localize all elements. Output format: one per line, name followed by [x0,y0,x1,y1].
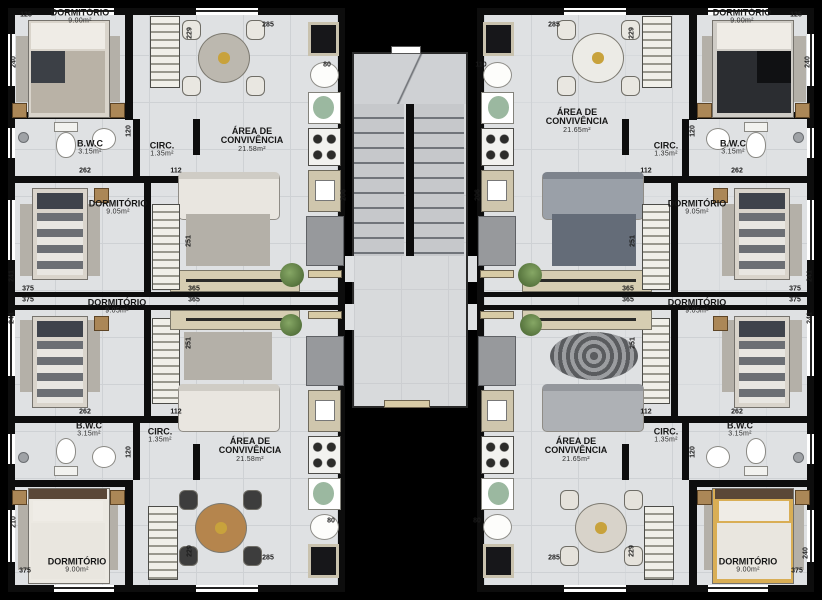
door-opening [468,256,477,282]
pillow [37,321,83,337]
chair [560,490,579,510]
living-rug [552,214,636,266]
wall [125,8,133,120]
nightstand [697,490,712,505]
floor-plan: DORMITÓRIO9.00m² B.W.C3.15m² CIRC.1.35m²… [0,0,822,600]
stairwell [352,52,468,408]
window [196,585,258,592]
duvet [717,523,791,579]
nightstand [94,316,109,331]
nightstand [12,103,27,118]
wall [8,416,200,423]
stove [308,128,341,166]
duvet [31,523,105,579]
dining-table [198,33,250,83]
window [807,200,814,260]
oven [308,22,339,56]
stove [308,436,341,474]
wall [144,183,151,292]
tv-console [306,216,344,266]
chair [560,546,579,566]
wall [8,480,133,487]
double-bed [712,488,794,584]
single-bed [734,188,790,280]
chair [246,76,265,96]
nightstand [94,188,109,203]
duvet [37,341,83,403]
chair [557,20,576,40]
dining-table [572,33,624,83]
dining-set [175,486,265,570]
nightstand [697,103,712,118]
wall [144,310,151,416]
wall [671,183,678,292]
door-opening [345,256,354,282]
wall [477,292,814,297]
shower-head [793,132,804,143]
window [564,585,626,592]
plant [520,314,542,336]
sofa [542,384,644,432]
window [8,316,15,376]
washbasin [483,62,512,88]
pillows [717,23,791,49]
wardrobe [152,204,180,290]
dining-set [557,486,647,570]
dining-table [195,503,247,553]
chair [624,546,643,566]
washbasin [483,514,512,540]
pillows [719,501,789,521]
counter-sink [481,390,514,432]
wall [193,444,200,480]
washbasin [706,128,730,150]
headboard [715,489,793,499]
window [807,34,814,86]
nightstand [795,103,810,118]
shower-head [793,452,804,463]
stair-flight-right [414,104,464,256]
double-bed [28,488,110,584]
left-wing [8,8,345,592]
wall [689,480,814,487]
wall [622,176,814,183]
pillow [37,193,83,209]
blanket [31,51,65,83]
wall [8,292,345,297]
wall [193,119,200,155]
wall [682,423,689,480]
wall [125,480,133,592]
window [8,200,15,260]
dining-table [575,503,627,553]
wardrobe [152,318,180,404]
nightstand [713,188,728,203]
window [196,8,258,15]
sofa [542,172,644,220]
window [807,434,814,464]
living-rug [550,332,638,380]
wall [133,119,140,176]
chair [182,20,201,40]
window [54,8,114,15]
duvet [37,213,83,275]
plant [280,314,302,336]
shower-head [18,452,29,463]
pillow [739,193,785,209]
window [807,128,814,158]
tv-console [478,336,516,386]
duvet [739,341,785,403]
dining-set [554,16,644,100]
nightstand [713,316,728,331]
wall [689,480,697,592]
toilet [56,438,76,464]
wall [622,416,814,423]
window [8,128,15,158]
wall [622,119,629,155]
wall [671,310,678,416]
window [54,585,114,592]
window [708,8,768,15]
window [8,510,15,562]
chair [621,76,640,96]
wall [622,444,629,480]
wall [682,119,689,176]
counter-sink [308,390,341,432]
stove [481,128,514,166]
kitchen-sink [308,92,341,124]
wardrobe [642,204,670,290]
wardrobe [642,318,670,404]
window [564,8,626,15]
kitchen-sink [481,478,514,510]
stair-landing [354,54,466,104]
toilet-tank [54,466,78,476]
wall [8,176,200,183]
plant [518,263,542,287]
hall-door-leaf [384,400,430,408]
double-bed [28,20,110,118]
washbasin [706,446,730,468]
blanket [757,51,791,83]
chair [243,546,262,566]
wardrobe [642,16,672,88]
single-bed [32,188,88,280]
washbasin [92,128,116,150]
washbasin [310,62,339,88]
window [807,510,814,562]
counter-sink [308,170,341,212]
dining-set [178,16,268,100]
chair [243,490,262,510]
window [807,316,814,376]
washbasin [310,514,339,540]
stair-top-window [391,46,421,54]
entry-door-leaf [308,311,342,319]
stair-core [345,0,477,600]
oven [308,544,339,578]
door-opening [468,304,477,330]
toilet [56,132,76,158]
toilet [746,438,766,464]
wardrobe [644,506,674,580]
door-opening [345,304,354,330]
right-wing [477,8,814,592]
shower-head [18,132,29,143]
window [708,585,768,592]
window [8,434,15,464]
stair-divider [406,104,414,256]
oven [483,544,514,578]
nightstand [795,490,810,505]
kitchen-sink [481,92,514,124]
kitchen-sink [308,478,341,510]
wall [689,8,697,120]
tv-console [306,336,344,386]
pillows [33,501,103,521]
living-rug [184,332,272,380]
chair [246,20,265,40]
window [8,34,15,86]
toilet-tank [54,122,78,132]
chair [624,490,643,510]
entry-door-leaf [308,270,342,278]
single-bed [734,316,790,408]
nightstand [110,103,125,118]
toilet-tank [744,122,768,132]
toilet [746,132,766,158]
stove [481,436,514,474]
nightstand [110,490,125,505]
entry-door-leaf [480,270,514,278]
wardrobe [150,16,180,88]
living-rug [186,214,270,266]
toilet-tank [744,466,768,476]
oven [483,22,514,56]
wardrobe [148,506,178,580]
chair [621,20,640,40]
plant [280,263,304,287]
single-bed [32,316,88,408]
washbasin [92,446,116,468]
pillow [739,321,785,337]
nightstand [12,490,27,505]
duvet [739,213,785,275]
tv-console [478,216,516,266]
sofa [178,384,280,432]
chair [179,490,198,510]
entry-door-leaf [480,311,514,319]
sofa [178,172,280,220]
wall [133,423,140,480]
pillows [31,23,105,49]
stair-flight-left [354,104,404,256]
chair [182,76,201,96]
double-bed [712,20,794,118]
chair [557,76,576,96]
counter-sink [481,170,514,212]
chair [179,546,198,566]
headboard [29,489,107,499]
